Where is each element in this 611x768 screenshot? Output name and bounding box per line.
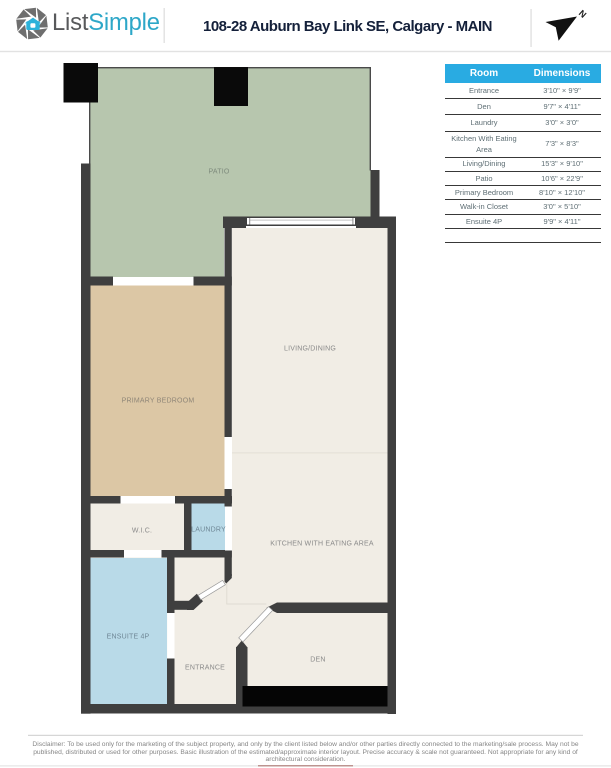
svg-text:N: N [577, 8, 589, 20]
